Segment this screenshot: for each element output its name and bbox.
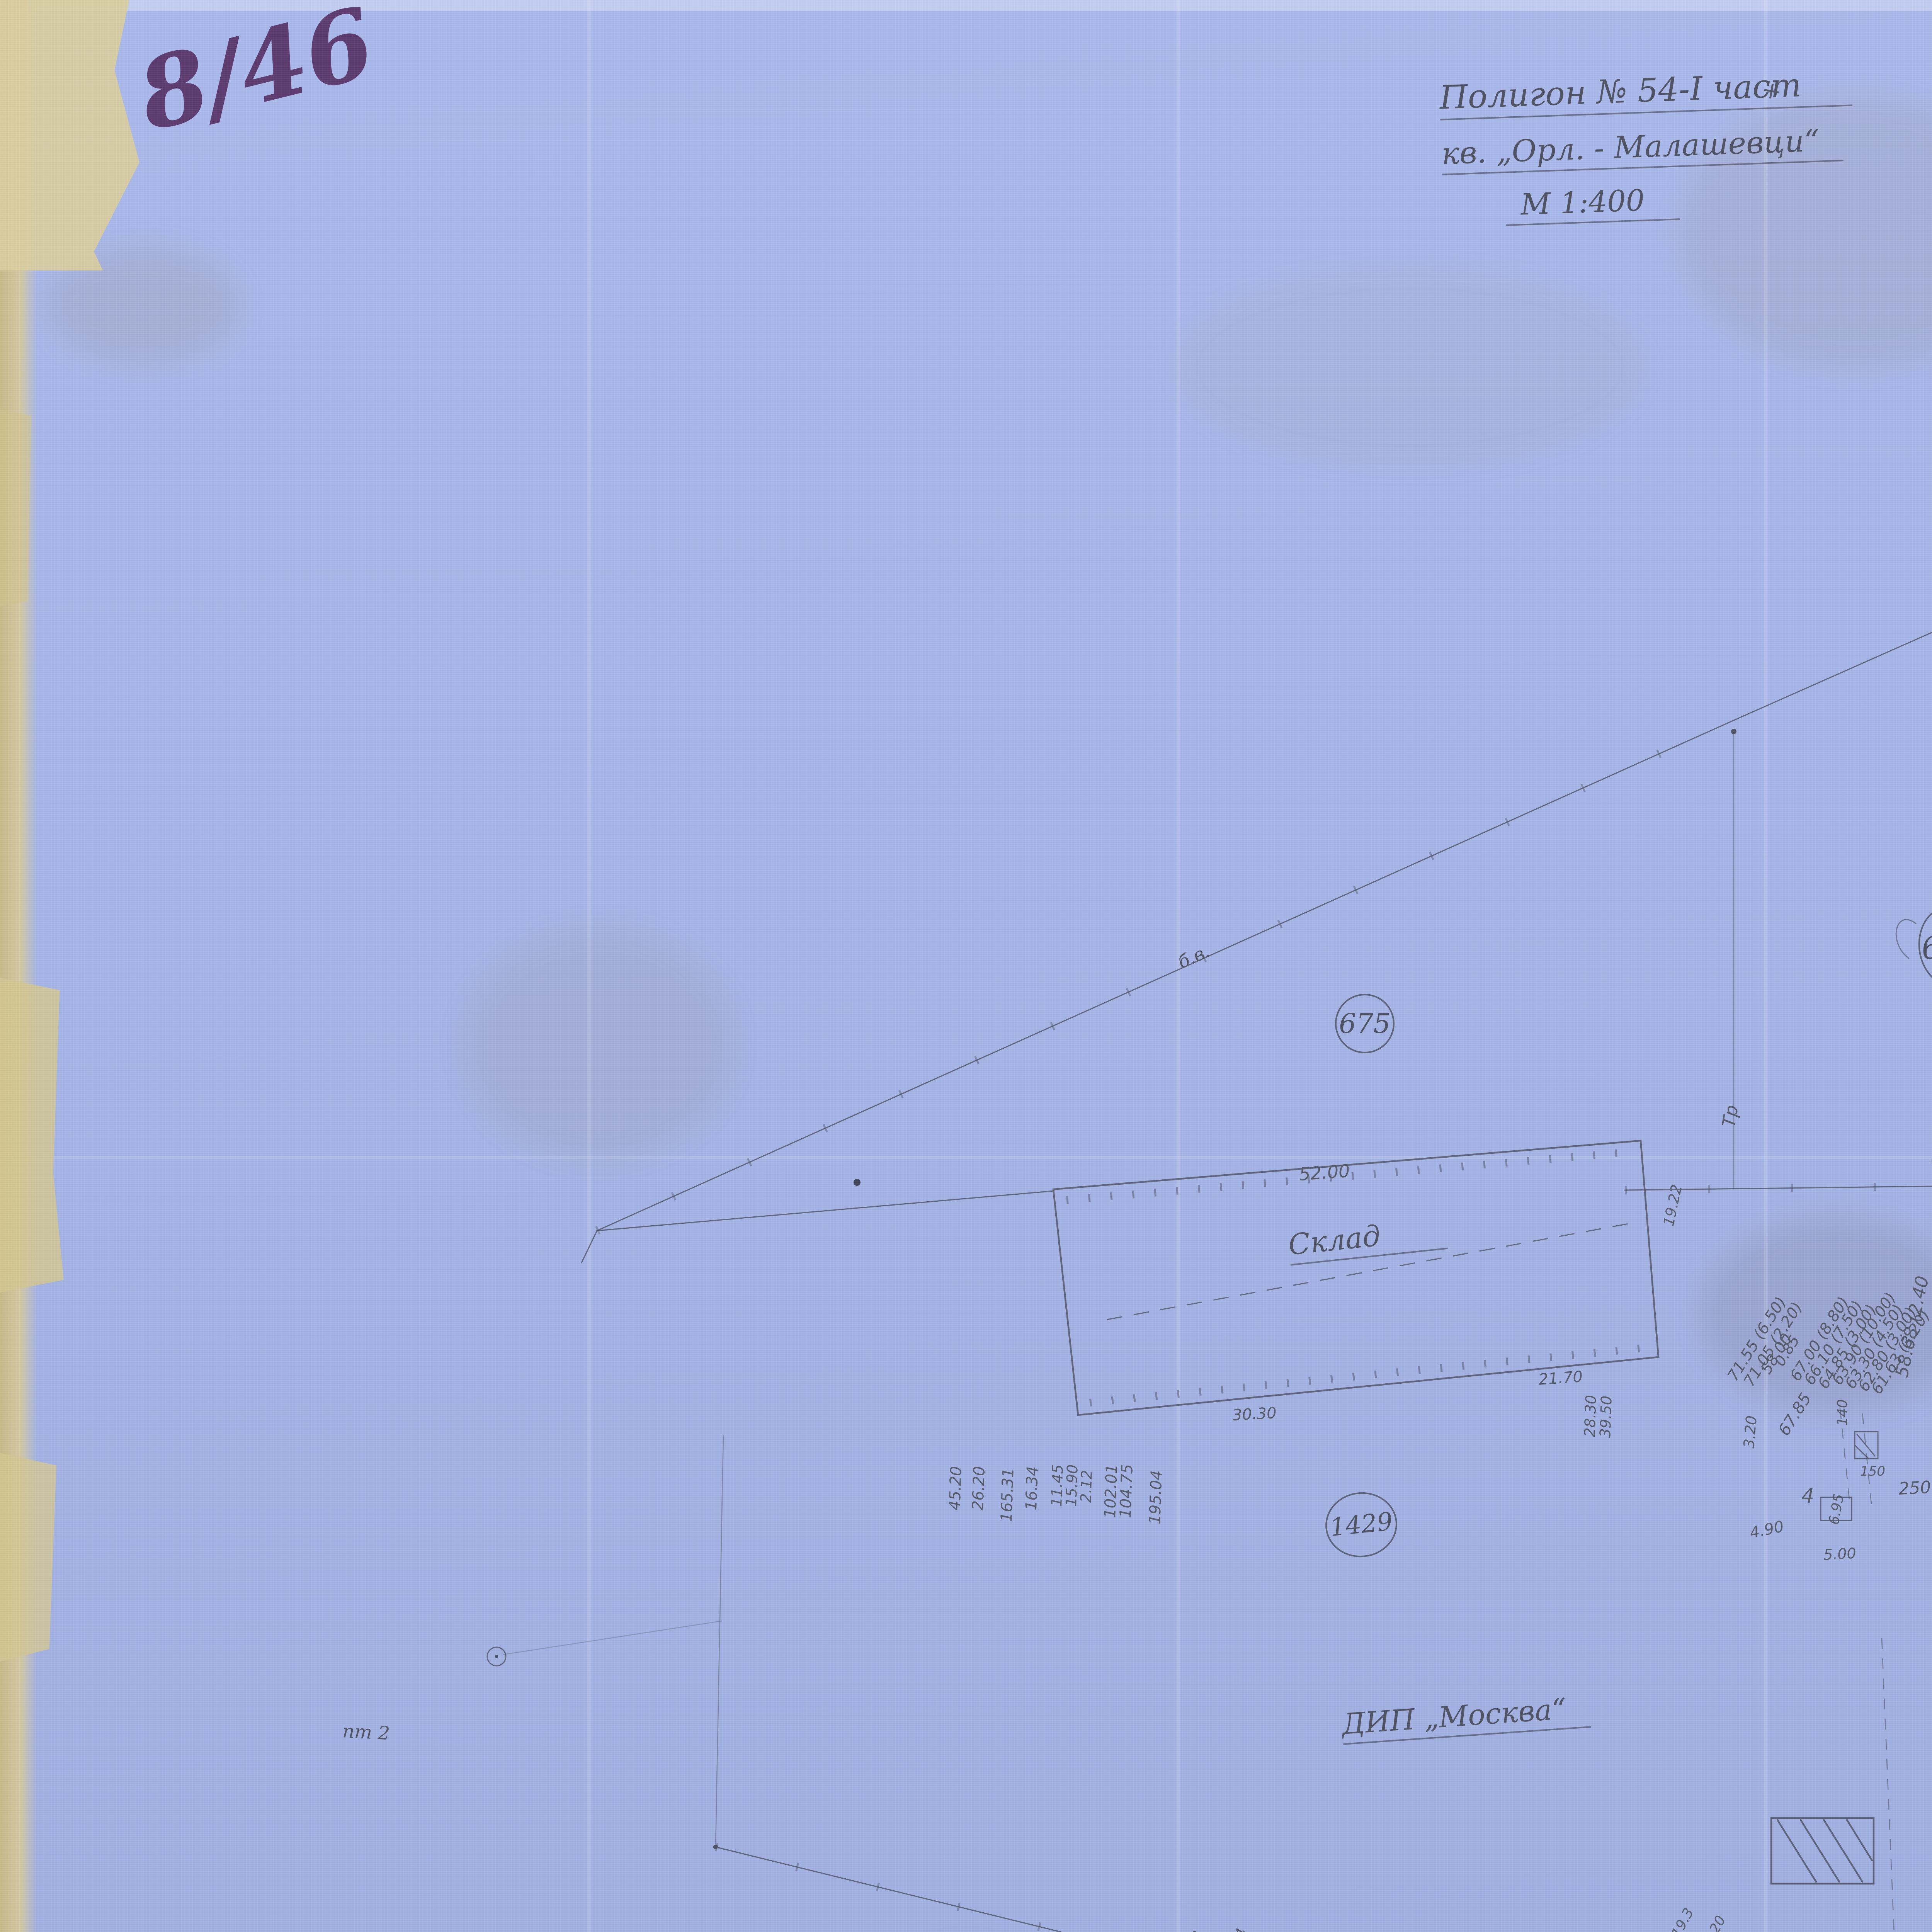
- measurement-label: 26.20: [969, 1466, 988, 1511]
- measurement-label: Тр: [1718, 1104, 1742, 1129]
- measurement-label: 45.20: [946, 1466, 965, 1511]
- measurement-label: 4: [1801, 1485, 1814, 1508]
- measurement-label: 195.04: [1146, 1470, 1166, 1524]
- measurement-label: 39.50: [1597, 1395, 1615, 1438]
- parcel-number: 675: [1339, 1008, 1391, 1039]
- measurement-label: 165.31: [998, 1468, 1017, 1522]
- measurement-label: 140: [1835, 1399, 1850, 1426]
- measurement-label: 5.00: [1823, 1545, 1857, 1563]
- title-block: Полигон № 54-І част кв. „Орл. - Малашевц…: [1439, 64, 1856, 224]
- measurement-label: 21.70: [1538, 1368, 1583, 1389]
- measurement-label: 30.30: [1232, 1404, 1277, 1424]
- survey-linework: [0, 0, 1932, 1932]
- measurement-label: 3.20: [1740, 1415, 1760, 1449]
- label-pt2: пт 2: [342, 1720, 390, 1744]
- measurement-label: 2.12: [1077, 1469, 1095, 1503]
- parcel-number: 674: [1920, 926, 1932, 966]
- measurement-label: 52.00: [1298, 1160, 1350, 1185]
- measurement-label: 16.34: [1022, 1466, 1042, 1511]
- map-scale: М 1:400: [1505, 182, 1680, 226]
- map-subtitle: кв. „Орл. - Малашевци“: [1441, 122, 1844, 175]
- parcel-number: 1429: [1328, 1507, 1394, 1543]
- map-sheet: 8/46 Полигон № 54-І част кв. „Орл. - Мал…: [0, 0, 1932, 1932]
- measurement-label: 250: [1898, 1478, 1932, 1499]
- measurement-label: 104.75: [1117, 1464, 1136, 1518]
- parcel-circle-675: 675: [1335, 994, 1395, 1053]
- measurement-label: 150: [1860, 1464, 1885, 1479]
